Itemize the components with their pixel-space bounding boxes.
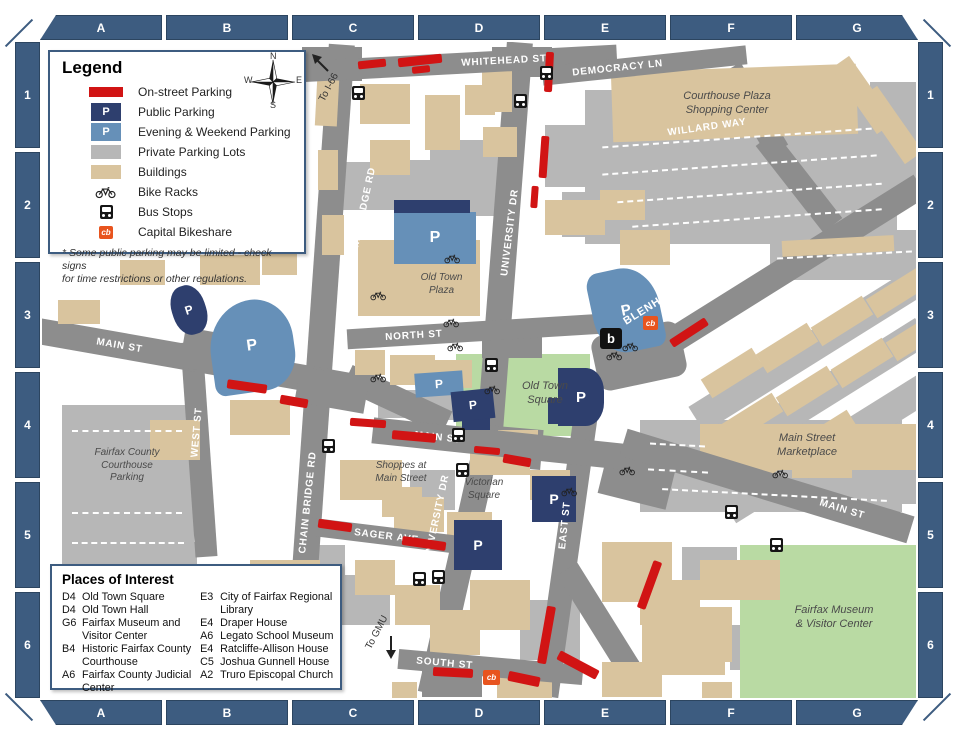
arrow-south-icon: [384, 634, 398, 660]
parking-aisle-marking: [72, 430, 182, 432]
bike-rack-icon: [772, 468, 789, 479]
evening-weekend-parking-lot: P: [394, 212, 476, 264]
place-of-interest-item: E4Draper House: [200, 617, 334, 630]
public-parking-swatch: P: [88, 103, 124, 121]
building-block: [702, 682, 732, 698]
bus-stop-icon: [88, 205, 124, 219]
legend-note: * Some public parking may be limited - c…: [62, 247, 296, 286]
grid-col-label: B: [166, 700, 288, 725]
places-of-interest-panel: Places of Interest D4Old Town SquareD4Ol…: [50, 564, 342, 690]
bike-rack-icon: [622, 341, 639, 352]
street-label-main-east: MAIN ST: [818, 497, 866, 521]
place-of-interest-item: E3City of Fairfax Regional Library: [200, 591, 334, 617]
grid-row-label: 3: [918, 262, 943, 368]
building-block: [700, 560, 780, 600]
grid-col-label: G: [796, 15, 918, 40]
label-courthouse-parking: Fairfax County Courthouse Parking: [67, 447, 187, 485]
grid-col-label: A: [40, 15, 162, 40]
parking-aisle-marking: [72, 542, 184, 544]
capital-bikeshare-icon: cb: [643, 316, 658, 330]
place-grid-code: D4: [62, 604, 82, 617]
building-block: [483, 127, 517, 157]
compass-w: W: [244, 75, 253, 85]
parking-p-label: P: [435, 377, 444, 392]
legend-item-label: Private Parking Lots: [138, 145, 245, 159]
building-block: [322, 215, 344, 255]
bike-rack-icon: [619, 465, 636, 476]
label-old-town-plaza: Old Town Plaza: [394, 272, 489, 297]
parking-p-label: P: [468, 398, 477, 413]
parking-p-label: P: [430, 229, 441, 247]
grid-right-col: 1 2 3 4 5 6: [918, 42, 943, 698]
label-fairfax-museum: Fairfax Museum & Visitor Center: [754, 604, 914, 632]
bike-rack-icon: [88, 185, 124, 199]
cb-label: cb: [487, 673, 496, 682]
place-name: Draper House: [220, 617, 287, 630]
legend-item-buildings: Buildings: [62, 162, 296, 182]
bike-rack-icon: [561, 486, 578, 497]
legend-item-label: Bus Stops: [138, 205, 193, 219]
bike-rack-icon: [370, 372, 387, 383]
street-label-north: NORTH ST: [385, 328, 443, 342]
places-column-1: D4Old Town SquareD4Old Town HallG6Fairfa…: [62, 591, 194, 695]
grid-row-label: 2: [918, 152, 943, 258]
parking-p-label: P: [245, 336, 258, 355]
building-swatch: [88, 165, 124, 179]
place-name: Old Town Hall: [82, 604, 148, 617]
street-label-main-west: MAIN ST: [96, 336, 144, 355]
grid-col-label: F: [670, 15, 792, 40]
place-name: Ratcliffe-Allison House: [220, 643, 328, 656]
bike-rack-icon: [447, 341, 464, 352]
bike-rack-icon: [370, 290, 387, 301]
building-block: [642, 607, 732, 662]
public-parking-lot: P: [454, 520, 502, 570]
bus-stop-icon: [452, 428, 465, 442]
place-of-interest-item: A6Fairfax County Judicial Center: [62, 669, 194, 695]
private-lot-swatch: [88, 145, 124, 159]
legend-item-bike-racks: Bike Racks: [62, 182, 296, 202]
building-block: [545, 200, 605, 235]
building-block: [602, 542, 672, 602]
bus-stop-icon: [485, 358, 498, 372]
building-block: [355, 560, 395, 595]
street-label-whitehead: WHITEHEAD ST: [461, 53, 547, 68]
grid-row-label: 5: [15, 482, 40, 588]
parking-map-page: { "grid": {"cols":["A","B","C","D","E","…: [0, 0, 958, 740]
bike-rack-icon: [444, 253, 461, 264]
place-name: City of Fairfax Regional Library: [220, 591, 334, 617]
place-grid-code: G6: [62, 617, 82, 643]
grid-row-label: 1: [15, 42, 40, 148]
grid-col-label: C: [292, 15, 414, 40]
bike-rack-icon: [606, 350, 623, 361]
place-name: Fairfax Museum and Visitor Center: [82, 617, 194, 643]
place-name: Fairfax County Judicial Center: [82, 669, 194, 695]
grid-col-label: D: [418, 700, 540, 725]
place-name: Historic Fairfax County Courthouse: [82, 643, 194, 669]
capital-bikeshare-icon: cb: [88, 226, 124, 239]
bikeshare-station-icon: b: [600, 328, 622, 349]
grid-col-label: B: [166, 15, 288, 40]
place-grid-code: A2: [200, 669, 220, 682]
place-grid-code: A6: [200, 630, 220, 643]
place-grid-code: A6: [62, 669, 82, 695]
bus-stop-icon: [456, 463, 469, 477]
building-block: [425, 95, 460, 150]
building-block: [620, 230, 670, 265]
label-courthouse-plaza: Courthouse Plaza Shopping Center: [632, 90, 822, 118]
parking-aisle-marking: [72, 512, 182, 514]
legend-item-bikeshare: cb Capital Bikeshare: [62, 222, 296, 242]
parking-p-label: P: [549, 491, 558, 507]
legend-item-label: Public Parking: [138, 105, 215, 119]
building-block: [230, 400, 290, 435]
place-of-interest-item: A2Truro Episcopal Church: [200, 669, 334, 682]
parking-p-label: P: [473, 537, 482, 553]
grid-col-label: A: [40, 700, 162, 725]
building-block: [392, 682, 417, 698]
bus-stop-icon: [514, 94, 527, 108]
grid-col-label: G: [796, 700, 918, 725]
arrow-northwest-icon: [310, 52, 332, 74]
grid-col-label: E: [544, 700, 666, 725]
bike-rack-icon: [484, 384, 501, 395]
places-column-2: E3City of Fairfax Regional LibraryE4Drap…: [200, 591, 334, 695]
grid-row-label: 4: [15, 372, 40, 478]
compass-n: N: [270, 51, 277, 61]
label-old-town-square: Old Town Square: [490, 380, 600, 408]
evening-parking-swatch: P: [88, 123, 124, 141]
legend-item-evening-parking: P Evening & Weekend Parking: [62, 122, 296, 142]
legend-item-label: Buildings: [138, 165, 187, 179]
legend-item-label: Evening & Weekend Parking: [138, 125, 291, 139]
public-parking-strip: [394, 200, 470, 213]
grid-row-label: 1: [918, 42, 943, 148]
grid-col-label: C: [292, 700, 414, 725]
bus-stop-icon: [352, 86, 365, 100]
compass-s: S: [270, 100, 276, 110]
bus-stop-icon: [770, 538, 783, 552]
place-grid-code: C5: [200, 656, 220, 669]
bike-rack-icon: [443, 317, 460, 328]
bus-stop-icon: [322, 439, 335, 453]
parking-lot-block: [545, 125, 590, 187]
place-grid-code: D4: [62, 591, 82, 604]
place-of-interest-item: A6Legato School Museum: [200, 630, 334, 643]
red-bar-swatch: [88, 87, 124, 97]
building-block: [470, 580, 530, 630]
place-of-interest-item: E4Ratcliffe-Allison House: [200, 643, 334, 656]
bus-stop-icon: [100, 205, 113, 219]
grid-row-label: 2: [15, 152, 40, 258]
legend-item-label: Bike Racks: [138, 185, 198, 199]
place-grid-code: E3: [200, 591, 220, 617]
station-label: b: [607, 331, 615, 346]
place-name: Joshua Gunnell House: [220, 656, 329, 669]
bus-stop-icon: [413, 572, 426, 586]
building-block: [482, 68, 512, 112]
place-name: Old Town Square: [82, 591, 165, 604]
grid-col-label: D: [418, 15, 540, 40]
grid-col-label: E: [544, 15, 666, 40]
legend-panel: Legend On-street Parking P Public Parkin…: [48, 50, 306, 254]
grid-row-label: 6: [918, 592, 943, 698]
building-block: [318, 150, 338, 190]
label-marketplace: Main Street Marketplace: [742, 432, 872, 460]
grid-row-label: 6: [15, 592, 40, 698]
grid-bottom-row: A B C D E F G: [40, 700, 918, 725]
place-of-interest-item: D4Old Town Hall: [62, 604, 194, 617]
legend-item-label: Capital Bikeshare: [138, 225, 232, 239]
place-name: Legato School Museum: [220, 630, 333, 643]
place-grid-code: E4: [200, 643, 220, 656]
building-block: [58, 300, 100, 324]
place-of-interest-item: C5Joshua Gunnell House: [200, 656, 334, 669]
bus-stop-icon: [540, 66, 553, 80]
building-block: [600, 190, 645, 220]
place-of-interest-item: B4Historic Fairfax County Courthouse: [62, 643, 194, 669]
places-title: Places of Interest: [62, 572, 334, 587]
compass-e: E: [296, 75, 302, 85]
grid-left-col: 1 2 3 4 5 6: [15, 42, 40, 698]
legend-item-label: On-street Parking: [138, 85, 232, 99]
building-block: [360, 84, 410, 124]
place-grid-code: B4: [62, 643, 82, 669]
capital-bikeshare-icon: cb: [483, 670, 500, 685]
bus-stop-icon: [432, 570, 445, 584]
grid-top-row: A B C D E F G: [40, 15, 918, 40]
compass-rose: N S W E: [246, 54, 300, 110]
parking-p-label: P: [183, 302, 195, 318]
on-street-parking-segment: [530, 186, 539, 208]
place-of-interest-item: G6Fairfax Museum and Visitor Center: [62, 617, 194, 643]
place-name: Truro Episcopal Church: [220, 669, 333, 682]
grid-row-label: 4: [918, 372, 943, 478]
place-grid-code: E4: [200, 617, 220, 630]
grid-row-label: 5: [918, 482, 943, 588]
on-street-parking-segment: [350, 418, 386, 428]
legend-item-private-lots: Private Parking Lots: [62, 142, 296, 162]
cb-label: cb: [646, 319, 655, 328]
legend-item-bus-stops: Bus Stops: [62, 202, 296, 222]
grid-row-label: 3: [15, 262, 40, 368]
grid-col-label: F: [670, 700, 792, 725]
place-of-interest-item: D4Old Town Square: [62, 591, 194, 604]
bus-stop-icon: [725, 505, 738, 519]
building-block: [602, 662, 662, 697]
